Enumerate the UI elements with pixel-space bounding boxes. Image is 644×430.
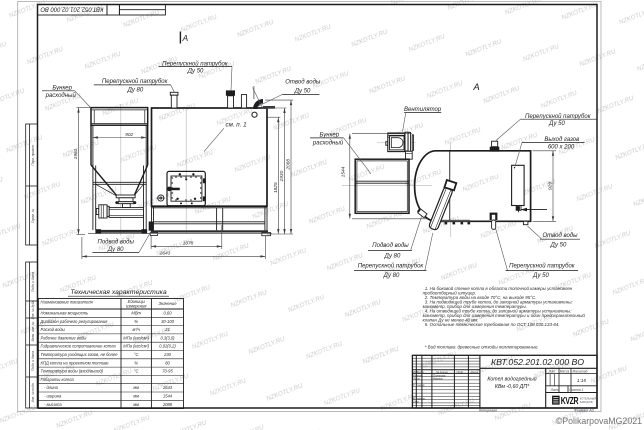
svg-text:70-95: 70-95	[162, 369, 173, 374]
svg-text:2643: 2643	[162, 385, 173, 390]
svg-text:Т. контр.: Т. контр.	[413, 383, 425, 387]
svg-text:ЗАВОД РФ: ЗАВОД РФ	[580, 400, 593, 404]
svg-text:©PolikarpovaMG2021: ©PolikarpovaMG2021	[556, 416, 642, 426]
svg-text:Подп.: Подп.	[457, 370, 465, 374]
svg-text:21: 21	[164, 327, 170, 332]
svg-text:Отвод воды: Отвод воды	[542, 233, 578, 239]
svg-text:Перепускной патрубок: Перепускной патрубок	[509, 263, 576, 270]
svg-text:КВТ.052.201.02.000 ВО: КВТ.052.201.02.000 ВО	[491, 358, 585, 367]
svg-text:2643: 2643	[159, 251, 171, 257]
svg-text:Ду 80: Ду 80	[107, 247, 124, 253]
svg-text:Котел водогрейный: Котел водогрейный	[487, 376, 536, 383]
svg-text:* Вид топлива: древесные отход: * Вид топлива: древесные отходы пеллетир…	[425, 345, 539, 350]
svg-text:1:15: 1:15	[577, 378, 586, 383]
svg-text:929: 929	[547, 182, 553, 190]
svg-text:Листов 1: Листов 1	[568, 388, 583, 392]
svg-text:Иванов: Иванов	[433, 377, 443, 381]
svg-text:Дата: Дата	[470, 370, 479, 374]
svg-text:1825: 1825	[273, 182, 279, 193]
svg-text:- длина: - длина	[44, 385, 59, 390]
svg-text:расходный: расходный	[45, 92, 77, 99]
svg-text:1961: 1961	[73, 148, 79, 159]
svg-text:600 х 200: 600 х 200	[548, 145, 575, 151]
svg-text:Номинальная мощность: Номинальная мощность	[41, 311, 89, 316]
svg-text:0,60: 0,60	[164, 311, 173, 316]
svg-text:30-100: 30-100	[161, 319, 174, 324]
svg-text:KVZR: KVZR	[561, 396, 579, 407]
svg-text:Техническая характеристика: Техническая характеристика	[70, 289, 166, 296]
svg-text:- ширина: - ширина	[44, 394, 62, 399]
svg-text:Ду 50: Ду 50	[548, 121, 565, 127]
svg-text:мм: мм	[133, 394, 139, 399]
svg-text:2088: 2088	[162, 402, 173, 407]
svg-text:Гидравлическое сопротивление к: Гидравлическое сопротивление котла	[41, 344, 117, 349]
svg-text:мм: мм	[133, 402, 139, 407]
svg-text:Расход воды: Расход воды	[41, 327, 65, 332]
svg-text:°С: °С	[134, 369, 139, 374]
svg-text:230: 230	[163, 352, 172, 357]
svg-text:А: А	[182, 33, 189, 43]
svg-text:Ду 80: Ду 80	[384, 253, 401, 259]
svg-text:Вентилятор: Вентилятор	[404, 107, 442, 113]
svg-text:0,02(0,2): 0,02(0,2)	[159, 344, 176, 349]
svg-text:Подвод воды: Подвод воды	[372, 243, 409, 249]
svg-text:МВт: МВт	[131, 311, 141, 316]
svg-text:Лит.: Лит.	[548, 369, 557, 373]
svg-text:80: 80	[165, 360, 170, 365]
svg-text:МПа (кгс/см²): МПа (кгс/см²)	[123, 344, 149, 349]
svg-text:Лист: Лист	[550, 388, 560, 392]
svg-text:м³/ч: м³/ч	[132, 327, 140, 332]
svg-text:%: %	[134, 360, 138, 365]
svg-text:Ду 50: Ду 50	[294, 89, 311, 95]
svg-text:Формат А3: Формат А3	[574, 409, 594, 413]
svg-text:Ду 50: Ду 50	[550, 242, 567, 248]
svg-text:Масса: Масса	[560, 369, 570, 373]
svg-text:- высота: - высота	[44, 402, 62, 407]
svg-text:Ду 50: Ду 50	[532, 273, 549, 279]
svg-text:Перв. примен.: Перв. примен.	[31, 144, 35, 165]
svg-text:Копировал: Копировал	[479, 409, 497, 413]
svg-text:%: %	[134, 319, 138, 324]
svg-text:1930: 1930	[279, 170, 285, 181]
svg-text:Инв. № подл.: Инв. № подл.	[31, 382, 35, 402]
svg-text:расходный: расходный	[312, 139, 344, 146]
svg-text:1078: 1078	[183, 240, 194, 246]
svg-text:Взам. инв. №: Взам. инв. №	[31, 321, 35, 341]
svg-text:КВм -0,60 ДП*: КВм -0,60 ДП*	[495, 384, 530, 390]
svg-text:Рабочее давление воды: Рабочее давление воды	[41, 335, 87, 340]
svg-text:0,3(3,0): 0,3(3,0)	[160, 335, 175, 340]
svg-text:МПа (кгс/см²): МПа (кгс/см²)	[123, 335, 149, 340]
svg-text:Диапазон рабочего регулировани: Диапазон рабочего регулирования	[40, 319, 109, 324]
svg-text:мм: мм	[133, 385, 139, 390]
svg-text:Масштаб: Масштаб	[573, 369, 588, 373]
svg-text:°С: °С	[134, 352, 139, 357]
svg-text:Ду 80: Ду 80	[383, 273, 400, 279]
svg-text:Ду 50: Ду 50	[187, 69, 204, 75]
svg-text:2088: 2088	[286, 159, 292, 171]
svg-text:Справ. №: Справ. №	[31, 208, 35, 223]
svg-text:Наименование показателя: Наименование показателя	[41, 299, 94, 304]
svg-text:КПД котла на проектном топливе: КПД котла на проектном топливе	[41, 360, 110, 365]
svg-text:902: 902	[125, 132, 133, 138]
svg-text:Отвод воды: Отвод воды	[285, 80, 321, 86]
svg-text:КВТ.052.201.02.000 ВО: КВТ.052.201.02.000 ВО	[40, 5, 103, 12]
svg-text:Перепускной патрубок: Перепускной патрубок	[358, 263, 425, 270]
svg-text:1544: 1544	[163, 394, 173, 399]
svg-text:Перепускной патрубок: Перепускной патрубок	[102, 78, 169, 85]
svg-text:Утв.: Утв.	[413, 400, 420, 404]
svg-text:Подп. и дата: Подп. и дата	[31, 351, 35, 371]
svg-text:Инв. № дубл.: Инв. № дубл.	[31, 300, 35, 320]
svg-text:1544: 1544	[341, 166, 347, 177]
svg-text:5. Остальные технические требо: 5. Остальные технические требования по О…	[425, 322, 560, 327]
svg-text:Выход газов: Выход газов	[544, 137, 579, 143]
svg-text:Температура воды (вход/выход): Температура воды (вход/выход)	[41, 369, 104, 374]
svg-text:Значение: Значение	[159, 301, 178, 306]
svg-text:Габариты котла: Габариты котла	[41, 377, 75, 382]
svg-text:А: А	[472, 82, 479, 93]
svg-text:Ду 80: Ду 80	[127, 88, 144, 94]
svg-text:измерения: измерения	[126, 303, 147, 308]
svg-text:Подп. и дата: Подп. и дата	[31, 272, 35, 292]
svg-text:см. п. 1: см. п. 1	[225, 122, 246, 129]
svg-text:Пров.: Пров.	[413, 377, 421, 381]
svg-text:Температура уходящих газов, не: Температура уходящих газов, не более	[41, 352, 119, 357]
svg-text:Подвод воды: Подвод воды	[98, 239, 135, 245]
